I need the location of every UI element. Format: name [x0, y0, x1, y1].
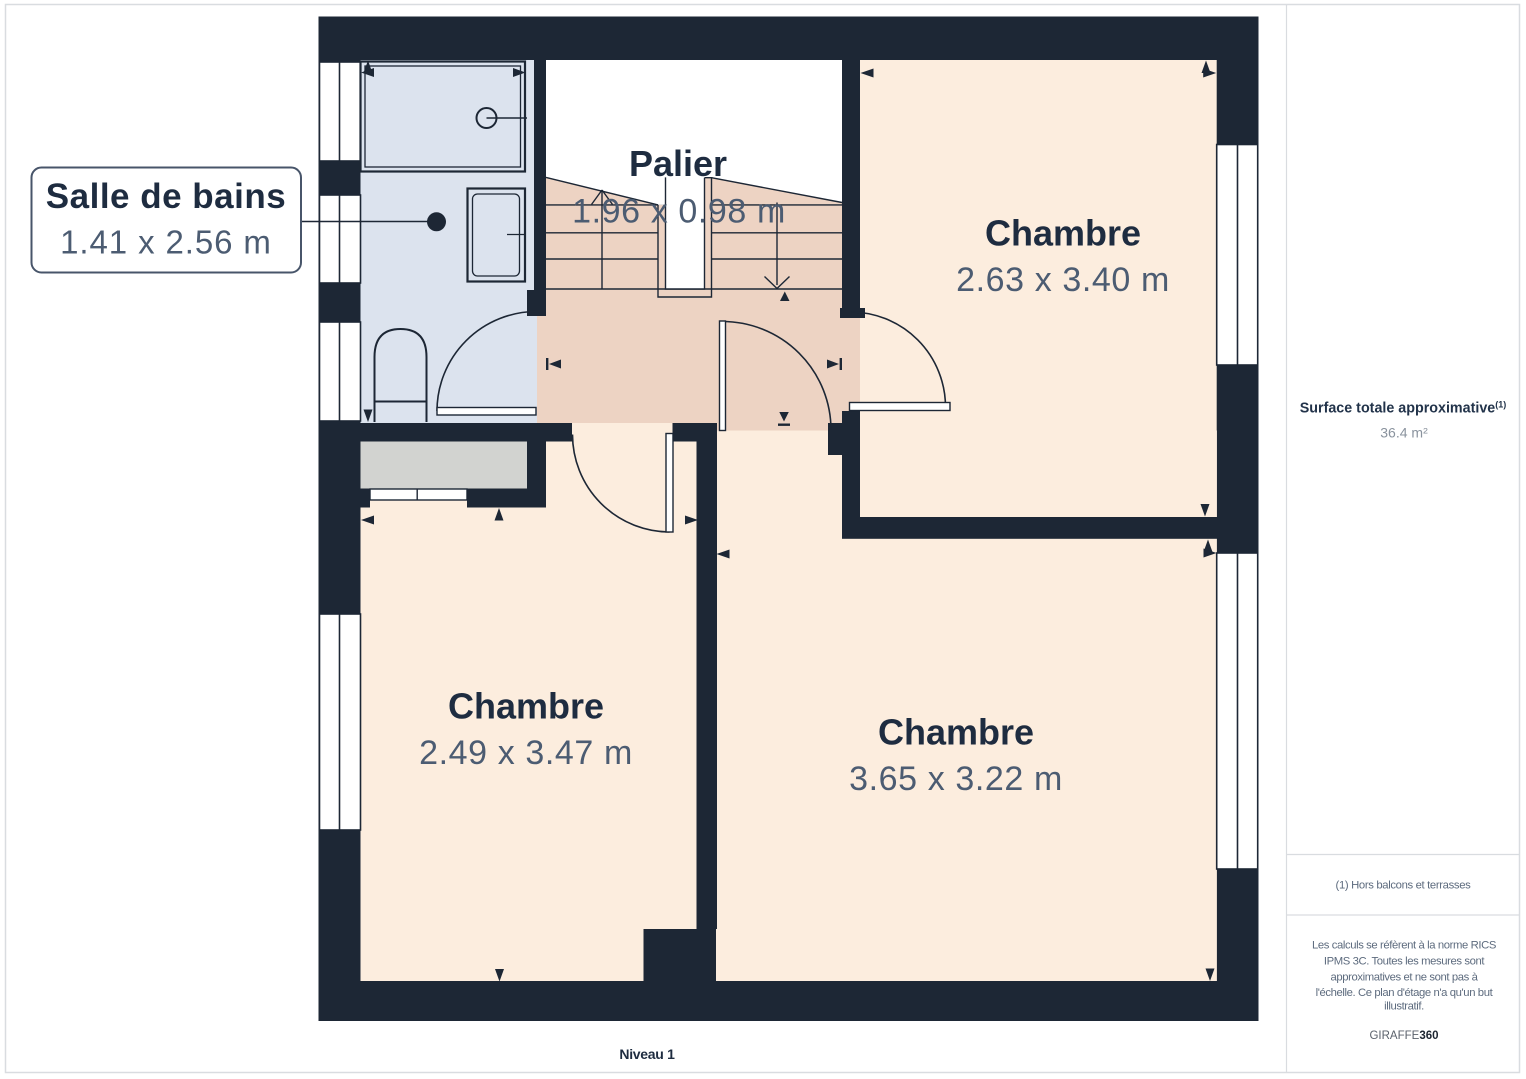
svg-text:1.96 x 0.98 m: 1.96 x 0.98 m: [572, 193, 786, 231]
svg-text:Salle de bains: Salle de bains: [46, 177, 286, 216]
svg-text:2.63 x 3.40 m: 2.63 x 3.40 m: [956, 261, 1170, 299]
svg-text:3.65 x 3.22 m: 3.65 x 3.22 m: [849, 760, 1063, 798]
svg-text:l'échelle. Ce plan d'étage n'a: l'échelle. Ce plan d'étage n'a qu'un but: [1316, 987, 1494, 999]
svg-text:Chambre: Chambre: [448, 686, 604, 727]
svg-text:GIRAFFE360: GIRAFFE360: [1369, 1030, 1438, 1042]
svg-text:Chambre: Chambre: [985, 213, 1141, 254]
svg-text:Surface totale approximative(1: Surface totale approximative(1): [1300, 399, 1506, 416]
svg-text:approximatives et ne sont pas: approximatives et ne sont pas à: [1330, 971, 1478, 983]
svg-text:2.49 x 3.47 m: 2.49 x 3.47 m: [419, 734, 633, 772]
svg-text:Niveau 1: Niveau 1: [619, 1046, 675, 1062]
svg-text:1.41 x 2.56 m: 1.41 x 2.56 m: [60, 224, 272, 261]
svg-text:illustratif.: illustratif.: [1384, 1000, 1424, 1012]
svg-text:Palier: Palier: [629, 143, 727, 184]
svg-text:Les calculs se réfèrent à la n: Les calculs se réfèrent à la norme RICS: [1312, 940, 1497, 952]
svg-text:Chambre: Chambre: [878, 711, 1034, 752]
svg-text:36.4 m²: 36.4 m²: [1380, 425, 1428, 441]
svg-text:IPMS 3C. Toutes les mesures so: IPMS 3C. Toutes les mesures sont: [1324, 955, 1486, 967]
svg-text:(1) Hors balcons et terrasses: (1) Hors balcons et terrasses: [1336, 880, 1472, 892]
